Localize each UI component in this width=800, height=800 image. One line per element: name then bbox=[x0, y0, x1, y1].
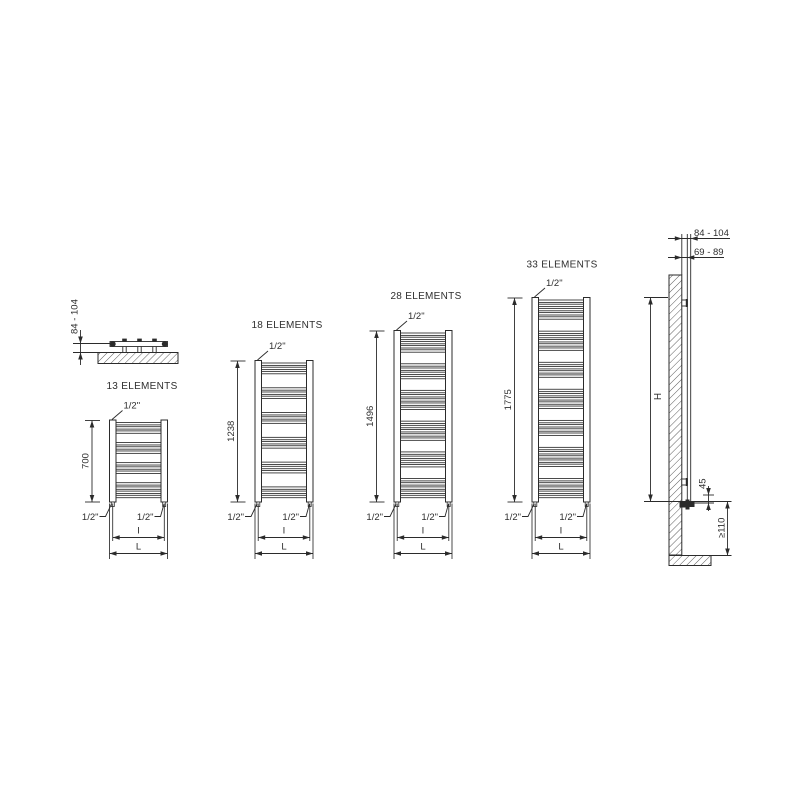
collector-left bbox=[394, 331, 401, 503]
element-rung bbox=[539, 491, 584, 493]
bracket-lower-clamp bbox=[686, 478, 688, 486]
valve-offset-label: 45 bbox=[698, 478, 709, 489]
element-rung bbox=[401, 390, 446, 392]
top-connection-leader bbox=[112, 411, 123, 420]
top-connection-leader bbox=[535, 288, 546, 297]
collector-right bbox=[584, 298, 591, 503]
element-rung bbox=[539, 483, 584, 485]
element-rung bbox=[401, 346, 446, 348]
element-rung bbox=[401, 337, 446, 339]
element-rung bbox=[262, 442, 307, 444]
element-rung bbox=[539, 402, 584, 404]
element-rung bbox=[116, 471, 161, 473]
element-rung bbox=[401, 487, 446, 489]
element-rung bbox=[262, 413, 307, 415]
element-rung bbox=[539, 406, 584, 408]
width-label: L bbox=[281, 542, 286, 553]
collector-right bbox=[446, 331, 453, 503]
interaxis-label: I bbox=[283, 526, 286, 537]
dim-arrow bbox=[675, 236, 682, 241]
dim-arrow bbox=[394, 551, 401, 556]
radiator-name: 33 ELEMENTS bbox=[526, 260, 597, 271]
interaxis-label: I bbox=[422, 526, 425, 537]
element-rung bbox=[116, 467, 161, 469]
element-rung bbox=[262, 396, 307, 398]
element-rung bbox=[401, 495, 446, 497]
bottom-right-connection-label: 1/2" bbox=[421, 512, 438, 523]
dim-arrow bbox=[161, 551, 168, 556]
bracket-upper-clamp bbox=[686, 299, 688, 307]
element-rung bbox=[116, 447, 161, 449]
interaxis-label: I bbox=[560, 526, 563, 537]
dim-arrow bbox=[235, 495, 240, 502]
element-rung bbox=[262, 491, 307, 493]
radiator-28-elements: 28 ELEMENTS14961/2"1/2"1/2"IL bbox=[365, 291, 462, 559]
dim-arrow bbox=[512, 298, 517, 305]
dim-arrow bbox=[648, 495, 653, 502]
element-rung bbox=[539, 393, 584, 395]
element-rung bbox=[401, 333, 446, 335]
dim-arrow bbox=[580, 535, 587, 540]
dim-arrow bbox=[303, 535, 310, 540]
element-rung bbox=[539, 456, 584, 458]
plan-view: 84 - 104 bbox=[70, 299, 179, 365]
element-rung bbox=[401, 341, 446, 343]
element-rung bbox=[116, 491, 161, 493]
dim-arrow bbox=[258, 535, 265, 540]
side-view: 84 - 10469 - 89H45≥110 bbox=[644, 228, 732, 566]
radiator-front-views: 13 ELEMENTS7001/2"1/2"1/2"IL18 ELEMENTS1… bbox=[81, 260, 598, 560]
element-rung bbox=[539, 308, 584, 310]
dim-arrow bbox=[512, 495, 517, 502]
element-rung bbox=[401, 456, 446, 458]
collector-left bbox=[110, 420, 117, 502]
bracket-top-1 bbox=[137, 339, 142, 342]
element-rung bbox=[262, 446, 307, 448]
element-rung bbox=[539, 348, 584, 350]
element-rung bbox=[539, 362, 584, 364]
wall-distance-label: 84 - 104 bbox=[70, 299, 81, 334]
element-rung bbox=[401, 403, 446, 405]
element-rung bbox=[262, 367, 307, 369]
element-rung bbox=[401, 364, 446, 366]
element-rung bbox=[539, 340, 584, 342]
collector-end-right bbox=[162, 341, 168, 347]
dim-arrow bbox=[725, 549, 730, 556]
collector-right bbox=[307, 361, 314, 503]
element-rung bbox=[539, 344, 584, 346]
interaxis-label: I bbox=[137, 526, 140, 537]
element-rung bbox=[401, 421, 446, 423]
dim-arrow bbox=[725, 502, 730, 509]
element-rung bbox=[262, 471, 307, 473]
element-rung bbox=[401, 376, 446, 378]
bottom-left-connection-label: 1/2" bbox=[227, 512, 244, 523]
element-rung bbox=[116, 427, 161, 429]
element-rung bbox=[262, 462, 307, 464]
height-value: 1775 bbox=[503, 389, 514, 410]
element-rung bbox=[401, 479, 446, 481]
collector-right bbox=[161, 420, 168, 502]
element-rung bbox=[539, 371, 584, 373]
top-connection-label: 1/2" bbox=[408, 311, 425, 322]
dim-arrow bbox=[583, 551, 590, 556]
element-rung bbox=[116, 443, 161, 445]
dim-arrow bbox=[706, 503, 711, 510]
dim-arrow bbox=[90, 495, 95, 502]
top-connection-label: 1/2" bbox=[269, 341, 286, 352]
height-value: 700 bbox=[81, 453, 92, 469]
element-rung bbox=[262, 437, 307, 439]
radiator-name: 28 ELEMENTS bbox=[390, 291, 461, 302]
dim-arrow bbox=[535, 535, 542, 540]
diagram-canvas: 84 - 104 13 ELEMENTS7001/2"1/2"1/2"IL18 … bbox=[0, 0, 800, 800]
radiator-top-view-bar bbox=[110, 342, 168, 347]
element-rung bbox=[539, 375, 584, 377]
element-rung bbox=[539, 447, 584, 449]
top-connection-leader bbox=[397, 321, 408, 330]
collector-left bbox=[255, 361, 262, 503]
element-rung bbox=[539, 452, 584, 454]
dim-arrow bbox=[113, 535, 120, 540]
element-rung bbox=[539, 313, 584, 315]
center-distance-label: 84 - 104 bbox=[694, 228, 729, 239]
element-rung bbox=[401, 452, 446, 454]
dim-arrow bbox=[78, 337, 83, 344]
element-rung bbox=[262, 392, 307, 394]
radiator-18-elements: 18 ELEMENTS12381/2"1/2"1/2"IL bbox=[226, 320, 323, 559]
element-rung bbox=[539, 420, 584, 422]
dim-arrow bbox=[445, 551, 452, 556]
bracket-top-2 bbox=[152, 339, 157, 342]
wall-section-side bbox=[669, 275, 682, 555]
dim-arrow bbox=[374, 495, 379, 502]
radiator-technical-drawing: 84 - 104 13 ELEMENTS7001/2"1/2"1/2"IL18 … bbox=[0, 0, 800, 800]
dim-arrow bbox=[110, 551, 117, 556]
element-rung bbox=[539, 495, 584, 497]
collector-left bbox=[532, 298, 539, 503]
element-rung bbox=[539, 479, 584, 481]
element-rung bbox=[401, 483, 446, 485]
element-rung bbox=[539, 425, 584, 427]
element-rung bbox=[539, 317, 584, 319]
dim-arrow bbox=[442, 535, 449, 540]
dim-arrow bbox=[90, 421, 95, 428]
radiator-name: 13 ELEMENTS bbox=[106, 381, 177, 392]
floor-section bbox=[669, 556, 711, 566]
dim-arrow bbox=[157, 535, 164, 540]
dim-arrow bbox=[235, 361, 240, 368]
dim-arrow bbox=[255, 551, 262, 556]
top-connection-leader bbox=[258, 351, 269, 360]
element-rung bbox=[539, 460, 584, 462]
element-rung bbox=[116, 431, 161, 433]
height-value: 1496 bbox=[365, 406, 376, 427]
element-rung bbox=[262, 495, 307, 497]
element-rung bbox=[539, 464, 584, 466]
bottom-left-connection-label: 1/2" bbox=[82, 512, 99, 523]
element-rung bbox=[116, 463, 161, 465]
element-rung bbox=[116, 487, 161, 489]
element-rung bbox=[539, 433, 584, 435]
bottom-right-connection-label: 1/2" bbox=[559, 512, 576, 523]
element-rung bbox=[116, 483, 161, 485]
dim-arrow bbox=[374, 331, 379, 338]
dim-arrow bbox=[532, 551, 539, 556]
element-rung bbox=[401, 399, 446, 401]
face-distance-label: 69 - 89 bbox=[694, 247, 724, 258]
element-rung bbox=[116, 495, 161, 497]
bottom-left-connection-label: 1/2" bbox=[366, 512, 383, 523]
valve-outlet bbox=[690, 502, 695, 507]
element-rung bbox=[116, 451, 161, 453]
bracket-top-0 bbox=[122, 339, 127, 342]
width-label: L bbox=[420, 542, 425, 553]
element-rung bbox=[401, 465, 446, 467]
element-rung bbox=[262, 388, 307, 390]
top-connection-label: 1/2" bbox=[124, 401, 141, 412]
element-rung bbox=[401, 395, 446, 397]
valve-body bbox=[680, 502, 686, 508]
width-label: L bbox=[558, 542, 563, 553]
element-rung bbox=[539, 335, 584, 337]
dim-arrow bbox=[78, 353, 83, 360]
element-rung bbox=[401, 491, 446, 493]
element-rung bbox=[539, 487, 584, 489]
top-connection-label: 1/2" bbox=[546, 278, 563, 289]
element-rung bbox=[262, 421, 307, 423]
height-value: 1238 bbox=[226, 421, 237, 442]
element-rung bbox=[539, 331, 584, 333]
element-rung bbox=[401, 372, 446, 374]
dim-arrow bbox=[675, 255, 682, 260]
element-rung bbox=[401, 407, 446, 409]
width-label: L bbox=[136, 542, 141, 553]
element-rung bbox=[539, 389, 584, 391]
radiator-13-elements: 13 ELEMENTS7001/2"1/2"1/2"IL bbox=[81, 381, 178, 559]
bottom-right-connection-label: 1/2" bbox=[282, 512, 299, 523]
element-rung bbox=[116, 423, 161, 425]
dim-arrow bbox=[648, 298, 653, 305]
element-rung bbox=[401, 460, 446, 462]
height-symbol: H bbox=[653, 393, 664, 400]
element-rung bbox=[539, 300, 584, 302]
element-rung bbox=[539, 429, 584, 431]
element-rung bbox=[401, 425, 446, 427]
dim-arrow bbox=[397, 535, 404, 540]
valve-nut bbox=[686, 500, 690, 510]
radiator-name: 18 ELEMENTS bbox=[251, 320, 322, 331]
element-rung bbox=[401, 438, 446, 440]
element-rung bbox=[262, 363, 307, 365]
element-rung bbox=[401, 430, 446, 432]
element-rung bbox=[401, 368, 446, 370]
floor-clearance-label: ≥110 bbox=[717, 518, 728, 538]
element-rung bbox=[401, 434, 446, 436]
element-rung bbox=[539, 304, 584, 306]
element-rung bbox=[539, 398, 584, 400]
radiator-33-elements: 33 ELEMENTS17751/2"1/2"1/2"IL bbox=[503, 260, 598, 560]
element-rung bbox=[262, 371, 307, 373]
collector-end-left bbox=[110, 341, 116, 347]
element-rung bbox=[401, 350, 446, 352]
element-rung bbox=[262, 466, 307, 468]
element-rung bbox=[262, 417, 307, 419]
bottom-left-connection-label: 1/2" bbox=[504, 512, 521, 523]
element-rung bbox=[539, 367, 584, 369]
element-rung bbox=[262, 487, 307, 489]
dim-arrow bbox=[306, 551, 313, 556]
wall-section-plan bbox=[98, 353, 178, 364]
bottom-right-connection-label: 1/2" bbox=[137, 512, 154, 523]
